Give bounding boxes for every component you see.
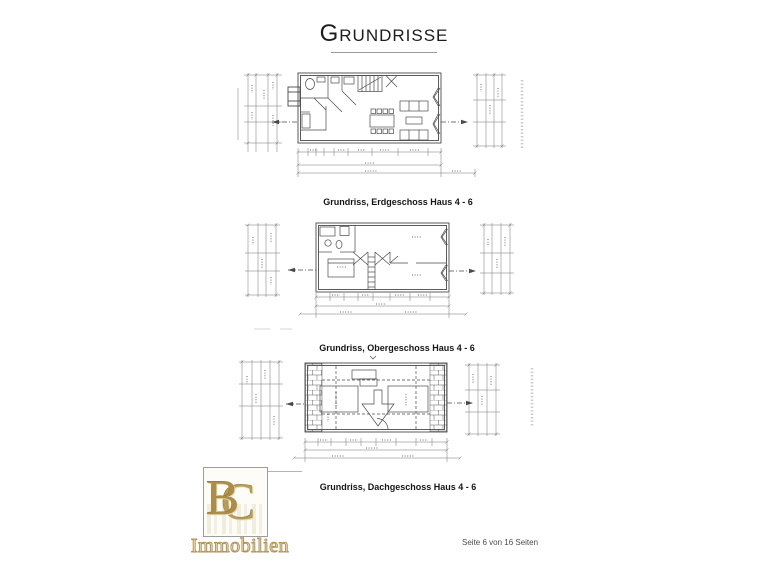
dimension-numbers <box>247 370 491 456</box>
floorplan-caption-dachgeschoss: Grundriss, Dachgeschoss Haus 4 - 6 <box>320 482 477 492</box>
dimension-numbers <box>253 233 505 312</box>
page-number: Seite 6 von 16 Seiten <box>462 538 538 547</box>
floorplan-dachgeschoss-drawing <box>236 350 536 470</box>
dimension-numbers <box>252 82 498 171</box>
dimension-lines <box>238 73 506 177</box>
floorplan-caption-erdgeschoss: Grundriss, Erdgeschoss Haus 4 - 6 <box>323 197 473 207</box>
logo-decor-line <box>268 471 302 472</box>
logo-company-name: Immobilien <box>190 535 290 558</box>
interior-fixtures <box>319 226 448 291</box>
page-header: Grundrisse <box>0 22 768 53</box>
walls <box>288 73 441 143</box>
floorplan-erdgeschoss-drawing <box>230 60 535 195</box>
document-page: Grundrisse <box>0 0 768 567</box>
floorplan-obergeschoss-drawing <box>240 213 530 343</box>
floorplan-obergeschoss <box>240 213 530 343</box>
dimension-lines <box>239 360 500 462</box>
title-underline <box>331 52 437 53</box>
page-title: Grundrisse <box>320 22 449 46</box>
walls <box>316 223 449 292</box>
logo-letter-b: B <box>206 472 239 522</box>
interior-fixtures <box>301 76 441 141</box>
floorplan-erdgeschoss <box>230 60 535 195</box>
north-mark <box>370 356 376 359</box>
floorplan-dachgeschoss <box>236 350 536 470</box>
logo-monogram-box: C B <box>203 467 268 537</box>
